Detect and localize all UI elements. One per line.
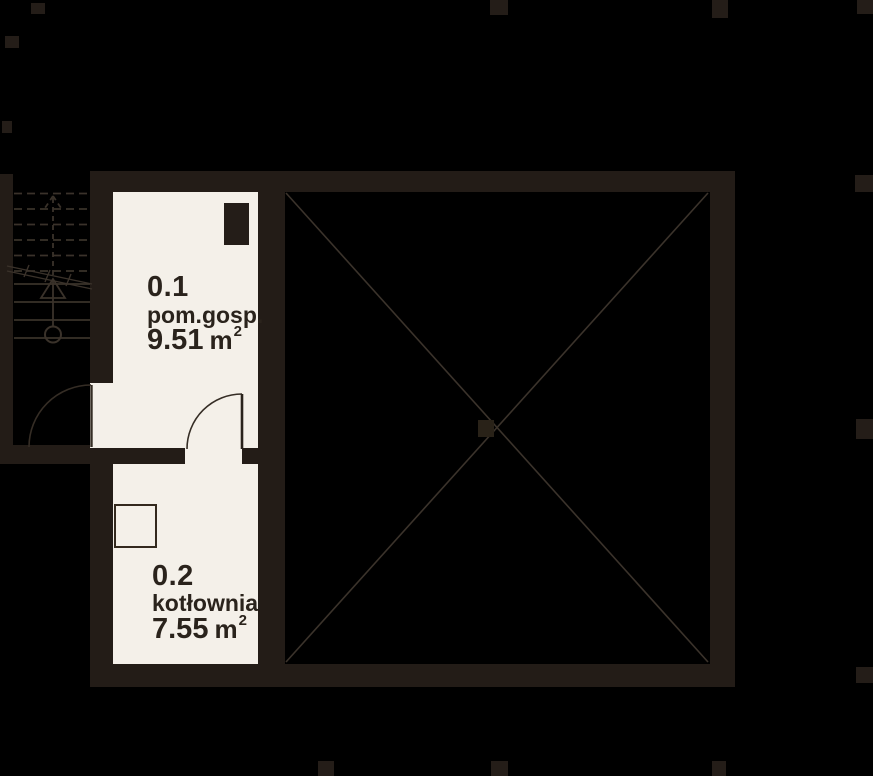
door-stair-icon	[29, 385, 92, 447]
room-0-1-area: 9.51m2	[147, 323, 242, 357]
floor-plan: 0.1 pom.gosp. 9.51m2 0.2 kotłownia 7.55m…	[0, 0, 873, 776]
area-exponent: 2	[239, 612, 247, 629]
area-unit: m	[209, 325, 232, 355]
door-interior-icon	[187, 394, 242, 449]
void-cross-icon	[286, 193, 708, 662]
boiler-icon	[115, 505, 156, 547]
area-value: 7.55	[152, 613, 208, 645]
area-value: 9.51	[147, 324, 203, 356]
plan-linework	[0, 0, 873, 776]
area-unit: m	[214, 614, 237, 644]
room-0-2-number: 0.2	[152, 560, 194, 593]
area-exponent: 2	[234, 323, 242, 340]
void-center-post	[478, 420, 494, 437]
staircase-icon	[7, 194, 92, 343]
room-0-2-area: 7.55m2	[152, 612, 247, 646]
room-0-1-number: 0.1	[147, 271, 189, 304]
